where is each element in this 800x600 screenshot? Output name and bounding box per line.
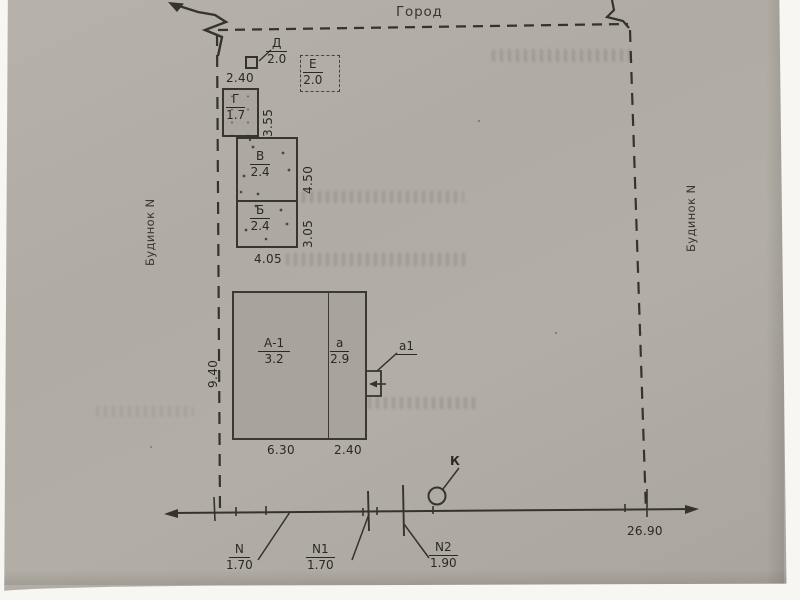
scan-edge — [0, 584, 800, 600]
break-arrow-icon — [168, 2, 184, 12]
bleed-through-smudge — [492, 49, 632, 62]
frontage-mark-n2-name: N2 — [429, 541, 458, 556]
dim-g-depth: 3.55 — [261, 93, 275, 137]
annex-a-letter: а — [330, 337, 349, 352]
structure-b-label: Б 2.4 — [250, 204, 270, 234]
structure-g-value: 1.7 — [226, 108, 245, 122]
scan-edge — [0, 0, 8, 600]
structure-d-label: Д 2.0 — [266, 37, 287, 67]
break-symbol-top-right — [607, 0, 629, 28]
structure-d-value: 2.0 — [267, 52, 286, 66]
annex-a-label: а 2.9 — [330, 337, 349, 367]
boundary-left-dashed — [217, 34, 220, 512]
structure-g-letter: Г — [226, 93, 245, 108]
bleed-through-smudge — [286, 253, 469, 266]
frontage-mark-n-width: 1.70 — [226, 558, 253, 572]
entrance-arrow-head-icon — [369, 381, 377, 388]
street-label: Город — [396, 4, 443, 20]
paper-edge-shadow — [0, 570, 800, 585]
structure-b-letter: Б — [250, 204, 270, 219]
building-a1-letter: А-1 — [258, 337, 290, 352]
structure-v-letter: В — [250, 150, 270, 165]
dim-g-width: 2.40 — [226, 71, 254, 85]
plan-linework — [0, 0, 800, 600]
frontage-mark-n-name: N — [229, 543, 250, 558]
structure-e-label: Е 2.0 — [303, 58, 323, 88]
structure-v-value: 2.4 — [251, 165, 270, 179]
porch-a1-outline — [367, 371, 381, 396]
structure-e-value: 2.0 — [303, 73, 322, 87]
neighbor-right-label: Будинок N — [684, 174, 698, 252]
dim-main-depth: 9.40 — [206, 342, 220, 388]
neighbor-left-label: Будинок N — [143, 190, 157, 266]
dim-v-depth: 4.50 — [301, 150, 315, 194]
bleed-through-smudge — [352, 397, 480, 409]
boundary-right-dashed — [630, 30, 646, 512]
dim-frontage-total: 26.90 — [627, 524, 663, 538]
site-plan-scan: Город Будинок N Будинок N Д 2.0 Е 2.0 Г … — [0, 0, 800, 600]
building-v-b-divider — [237, 200, 297, 202]
scan-edge — [779, 0, 800, 600]
bleed-through-smudge — [96, 406, 194, 417]
porch-a1-label: а1 — [396, 339, 417, 355]
frontage-line — [170, 509, 694, 513]
structure-d-outline — [245, 56, 258, 69]
break-symbol-top-left — [176, 5, 226, 56]
frontage-arrow-right-icon — [685, 505, 699, 514]
building-a1-value: 3.2 — [265, 352, 284, 366]
structure-e-letter: Е — [303, 58, 323, 73]
structure-d-letter: Д — [266, 37, 287, 52]
dim-main-width: 6.30 — [267, 443, 295, 457]
frontage-mark-n1-width: 1.70 — [307, 558, 334, 572]
frontage-mark-n1: N1 1.70 — [306, 543, 335, 573]
dim-b-depth: 3.05 — [301, 206, 315, 248]
well-k-circle — [429, 488, 446, 505]
well-k-label: К — [450, 454, 460, 468]
structure-b-value: 2.4 — [251, 219, 270, 233]
frontage-mark-n1-name: N1 — [306, 543, 335, 558]
frontage-mark-n2-width: 1.90 — [430, 556, 457, 570]
frontage-arrow-left-icon — [164, 509, 178, 518]
building-a1-label: А-1 3.2 — [258, 337, 290, 367]
dim-vb-width: 4.05 — [254, 252, 282, 266]
boundary-top-dashed — [218, 24, 628, 30]
annex-a-value: 2.9 — [330, 352, 349, 366]
frontage-mark-n2: N2 1.90 — [429, 541, 458, 571]
structure-v-label: В 2.4 — [250, 150, 270, 180]
building-a1-divider — [328, 292, 329, 439]
dim-annex-width: 2.40 — [334, 443, 362, 457]
frontage-mark-n: N 1.70 — [226, 543, 253, 573]
frontage-ticks — [214, 485, 647, 536]
structure-g-label: Г 1.7 — [226, 93, 245, 123]
